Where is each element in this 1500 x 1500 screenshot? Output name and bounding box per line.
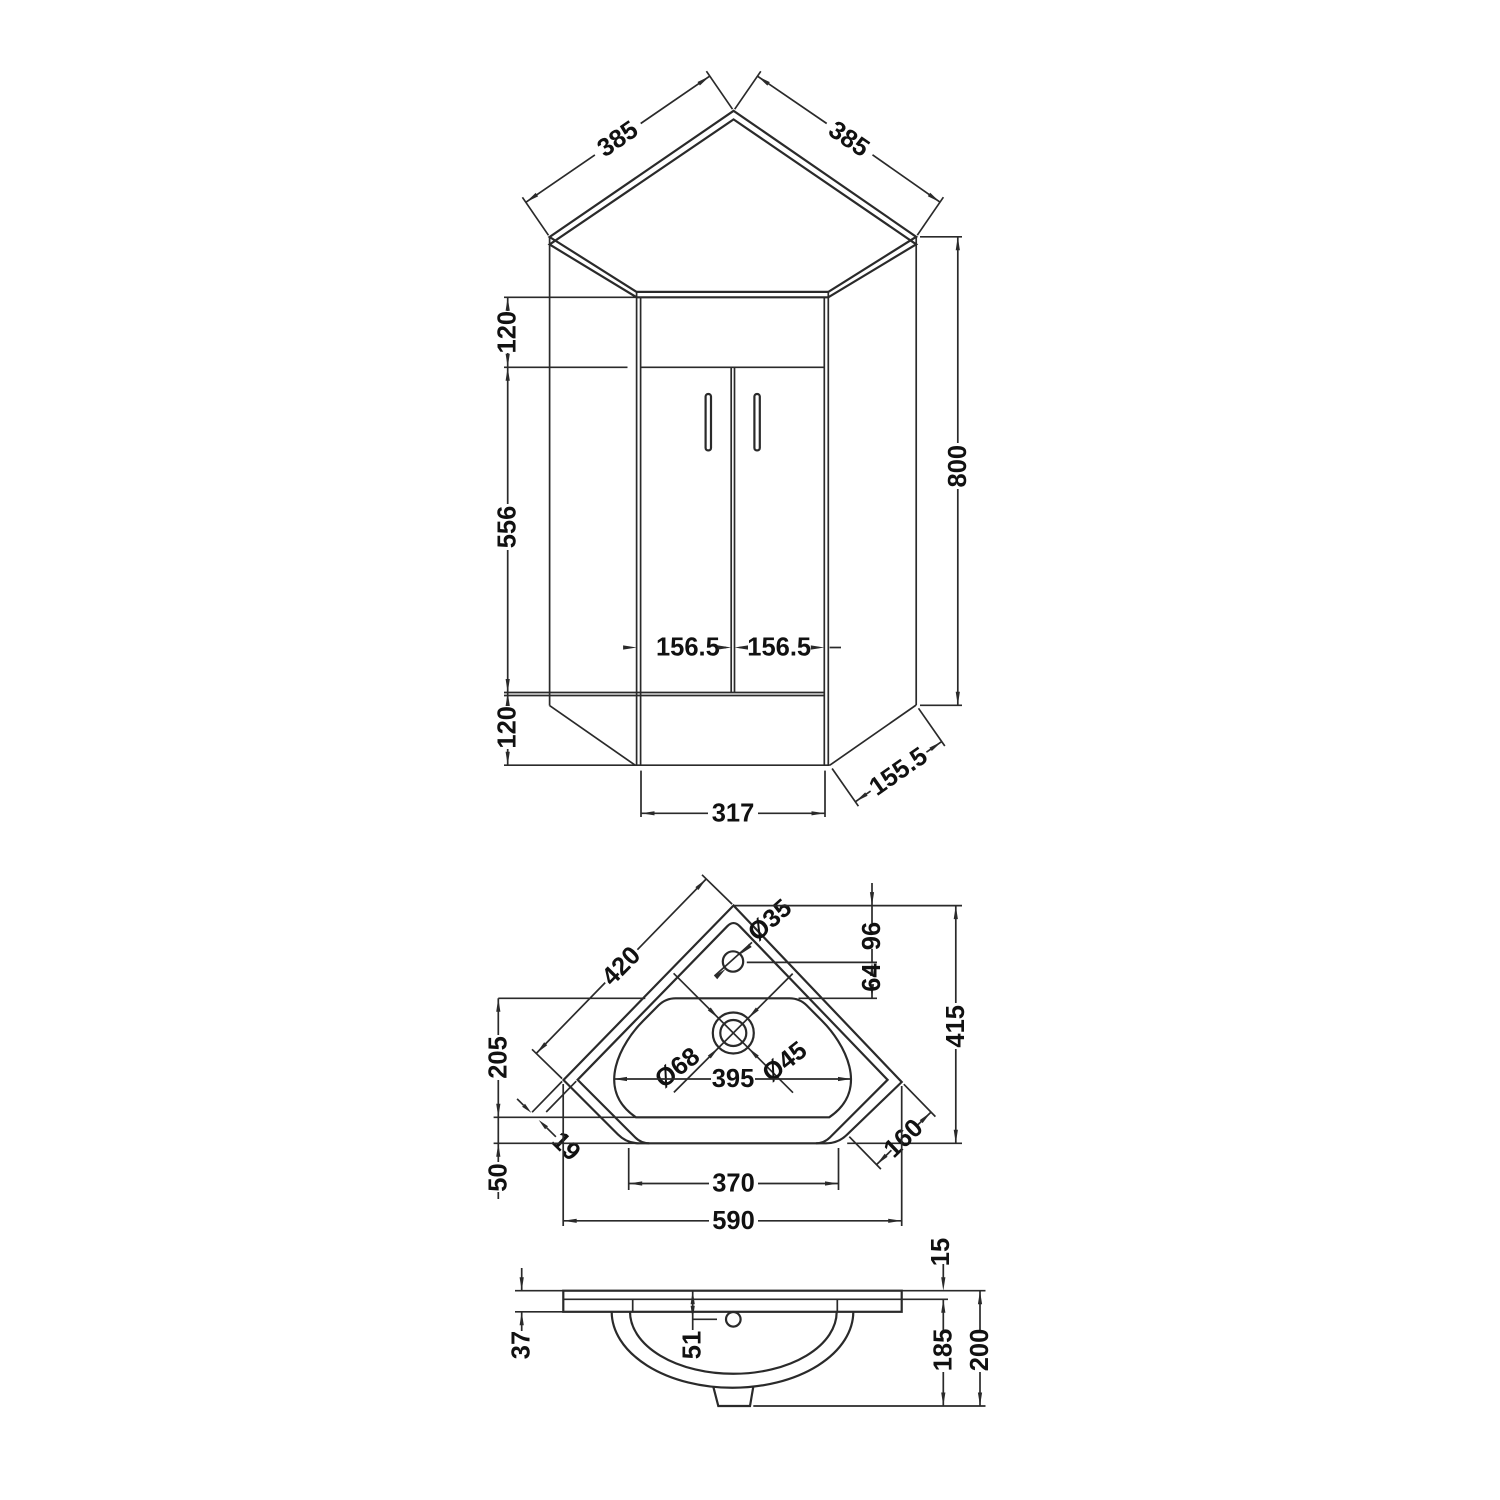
svg-text:205: 205	[484, 1036, 512, 1079]
svg-text:51: 51	[679, 1331, 707, 1359]
svg-text:200: 200	[966, 1329, 994, 1372]
svg-text:64: 64	[858, 963, 886, 992]
svg-text:120: 120	[494, 706, 522, 749]
svg-text:415: 415	[942, 1005, 970, 1048]
svg-text:395: 395	[712, 1065, 755, 1093]
svg-text:120: 120	[494, 311, 522, 354]
svg-text:156.5: 156.5	[656, 634, 720, 662]
svg-text:370: 370	[712, 1170, 755, 1198]
svg-text:185: 185	[929, 1329, 957, 1372]
svg-text:96: 96	[858, 922, 886, 950]
svg-text:800: 800	[944, 445, 972, 488]
svg-text:317: 317	[712, 799, 755, 827]
svg-text:50: 50	[484, 1163, 512, 1191]
svg-text:37: 37	[508, 1331, 536, 1359]
svg-text:15: 15	[927, 1238, 955, 1266]
svg-text:590: 590	[712, 1207, 755, 1235]
svg-text:156.5: 156.5	[747, 634, 811, 662]
svg-text:556: 556	[494, 506, 522, 549]
